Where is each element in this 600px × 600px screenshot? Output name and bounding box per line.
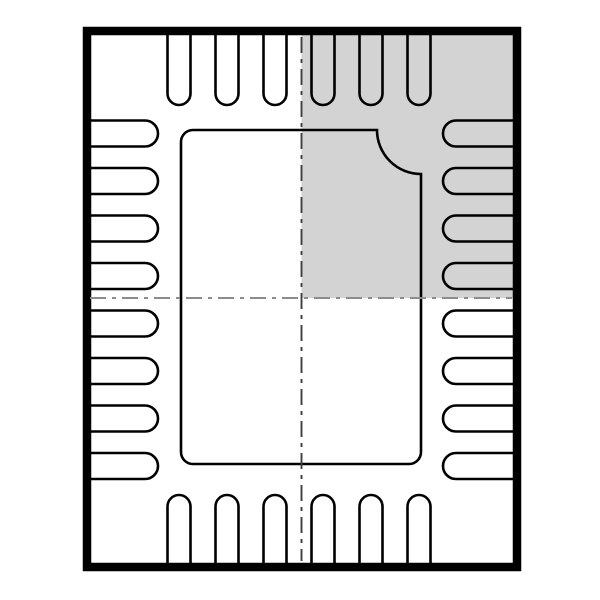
pin-top-3 bbox=[264, 35, 287, 105]
pin-top-1 bbox=[168, 35, 191, 105]
figure-canvas bbox=[0, 0, 600, 600]
pin-bottom-1 bbox=[168, 495, 191, 563]
pin-bottom-4 bbox=[312, 495, 335, 563]
pin-right-7 bbox=[443, 406, 513, 432]
pin-right-5 bbox=[443, 311, 513, 337]
pin-top-2 bbox=[216, 35, 239, 105]
pin-left-8 bbox=[91, 453, 158, 479]
pin-right-6 bbox=[443, 358, 513, 384]
pin-bottom-2 bbox=[216, 495, 239, 563]
pin-bottom-5 bbox=[360, 495, 383, 563]
pin-left-5 bbox=[91, 311, 158, 337]
pin-left-2 bbox=[91, 168, 158, 194]
pins-bottom bbox=[168, 495, 431, 563]
pin-bottom-6 bbox=[408, 495, 431, 563]
pin-left-4 bbox=[91, 263, 158, 289]
pins-left bbox=[91, 121, 158, 480]
pin-left-1 bbox=[91, 121, 158, 147]
pin-left-6 bbox=[91, 358, 158, 384]
pin-left-3 bbox=[91, 216, 158, 242]
pin-left-7 bbox=[91, 406, 158, 432]
pin-right-8 bbox=[443, 453, 513, 479]
package-drawing bbox=[0, 0, 600, 600]
pin-bottom-3 bbox=[264, 495, 287, 563]
